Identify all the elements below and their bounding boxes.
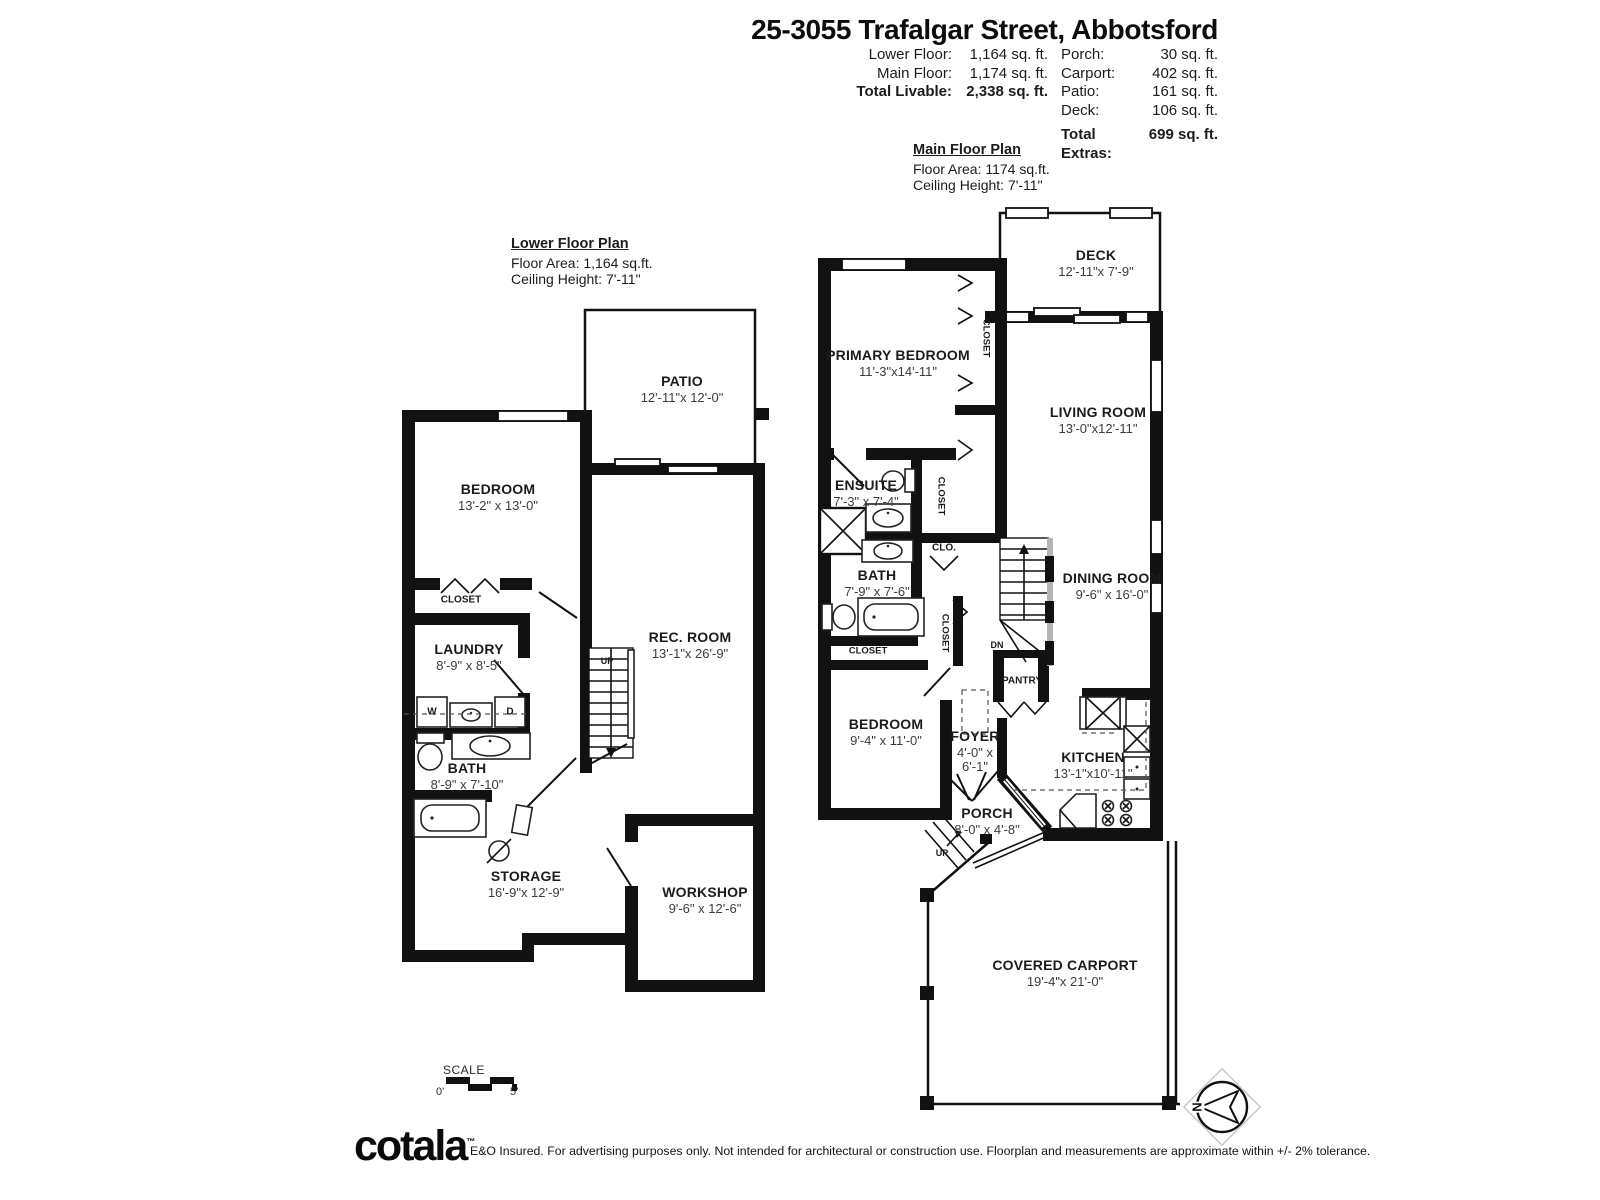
stat-row: Patio:161 sq. ft.: [1061, 83, 1218, 102]
window: [1126, 312, 1148, 322]
label-dryer: D: [506, 707, 513, 718]
lower-floor-fixtures: [404, 648, 634, 863]
room-label-rec-room: REC. ROOM13'-1"x 26'-9": [649, 629, 732, 661]
room-label-bedroom-main: BEDROOM9'-4" x 11'-0": [849, 716, 924, 748]
toilet-icon: [822, 604, 855, 630]
carport-post: [920, 1096, 934, 1110]
lower-plan-header: Lower Floor Plan Floor Area: 1,164 sq.ft…: [511, 236, 653, 288]
patio-slider-panel: [615, 459, 660, 466]
kitchen-sink-icon: [1060, 794, 1096, 828]
stat-row: Deck:106 sq. ft.: [1061, 102, 1218, 121]
door-leaf: [607, 848, 631, 886]
door-leaf: [924, 668, 950, 696]
bifold-door: [958, 275, 972, 291]
carport-post: [920, 986, 934, 1000]
stat-row-total: Total Livable:2,338 sq. ft.: [806, 83, 1048, 102]
livable-stats: Lower Floor:1,164 sq. ft. Main Floor:1,1…: [806, 46, 1048, 102]
room-label-bedroom-lower: BEDROOM13'-2" x 13'-0": [458, 481, 538, 513]
sink-icon: [452, 733, 530, 759]
room-label-storage: STORAGE16'-9"x 12'-9": [488, 868, 564, 900]
floorplan-page: .w{fill:#111;} .tl{stroke:#111;stroke-wi…: [0, 0, 1600, 1200]
stat-row: Porch:30 sq. ft.: [1061, 46, 1218, 65]
scale-bar: [446, 1077, 517, 1091]
stat-row: Carport:402 sq. ft.: [1061, 65, 1218, 84]
room-label-kitchen: KITCHEN13'-1"x10'-11": [1054, 749, 1133, 781]
sink-icon: [862, 540, 913, 562]
cotala-logo: cotala™: [354, 1122, 475, 1171]
pantry-door: [998, 702, 1024, 717]
main-plan-header: Main Floor Plan Floor Area: 1174 sq.ft. …: [913, 142, 1050, 194]
window: [498, 411, 568, 421]
room-label-living-room: LIVING ROOM13'-0"x12'-11": [1050, 404, 1146, 436]
label-washer: W: [427, 707, 436, 718]
room-label-carport: COVERED CARPORT19'-4"x 21'-0": [992, 957, 1137, 989]
bifold-door: [471, 579, 499, 593]
room-label-laundry: LAUNDRY8'-9" x 8'-5": [434, 641, 503, 673]
shower-icon: [820, 508, 866, 554]
laundry-sink-icon: [462, 709, 480, 721]
stat-row-total: Total Extras:699 sq. ft.: [1061, 126, 1218, 145]
label-dn: DN: [991, 640, 1004, 650]
double-door: [945, 771, 998, 801]
bifold-door: [958, 440, 972, 460]
room-label-foyer: FOYER4'-0" x6'-1": [950, 728, 999, 774]
scale-end: 5': [510, 1086, 518, 1098]
floorplan-drawing: .w{fill:#111;} .tl{stroke:#111;stroke-wi…: [0, 0, 1600, 1200]
label-closet-vertical-1: CLOSET: [981, 319, 992, 358]
label-clo: CLO.: [932, 543, 956, 554]
scale-start: 0': [436, 1086, 444, 1098]
window: [1151, 360, 1162, 412]
pantry-door: [1024, 702, 1046, 714]
label-closet-vertical-2: CLOSET: [936, 477, 947, 516]
room-label-dining-room: DINING ROOM9'-6" x 16'-0": [1063, 570, 1162, 602]
stairs-main: [1000, 538, 1054, 666]
bathtub-icon: [414, 799, 486, 837]
room-label-patio: PATIO12'-11"x 12'-0": [641, 373, 724, 405]
disclaimer-text: E&O Insured. For advertising purposes on…: [470, 1144, 1370, 1158]
label-closet-strip: CLOSET: [849, 646, 888, 657]
patio-slider-panel: [668, 466, 718, 473]
room-label-bath-main: BATH7'-9" x 7'-6": [844, 567, 910, 599]
room-label-porch: PORCH8'-0" x 4'-8": [954, 805, 1020, 837]
room-label-ensuite: ENSUITE7'-3" x 7'-4": [833, 477, 899, 509]
extras-stats: Porch:30 sq. ft. Carport:402 sq. ft. Pat…: [1061, 46, 1218, 145]
room-label-bath-lower: BATH8'-9" x 7'-10": [431, 760, 504, 792]
party-wall-stub: [755, 408, 769, 420]
carport-post: [920, 888, 934, 902]
north-label: N: [1190, 1101, 1205, 1112]
stove-icon: [1103, 801, 1132, 826]
water-heater-icon: [487, 839, 511, 863]
window: [842, 259, 906, 270]
kitchen-cabinet-icon: [1080, 697, 1126, 729]
label-up-lower: UP: [601, 656, 614, 666]
page-title: 25-3055 Trafalgar Street, Abbotsford: [751, 14, 1218, 46]
carport-post: [1162, 1096, 1176, 1110]
door-leaf: [539, 592, 577, 618]
bifold-door: [958, 308, 972, 324]
label-up-main: UP: [936, 848, 949, 858]
electrical-panel-icon: [512, 805, 533, 835]
closet-door: [930, 556, 958, 570]
bifold-door: [441, 579, 469, 593]
label-closet-vertical-3: CLOSET: [940, 614, 951, 653]
scale-label: SCALE: [443, 1063, 485, 1077]
stat-row: Lower Floor:1,164 sq. ft.: [806, 46, 1048, 65]
deck-rail: [1006, 208, 1048, 218]
room-label-workshop: WORKSHOP9'-6" x 12'-6": [662, 884, 748, 916]
main-floor-fixtures: [820, 469, 1180, 1110]
label-pantry: PANTRY: [1002, 676, 1042, 687]
room-label-deck: DECK12'-11"x 7'-9": [1058, 247, 1133, 279]
room-label-primary-bedroom: PRIMARY BEDROOM11'-3"x14'-11": [826, 347, 970, 379]
bathtub-icon: [858, 598, 924, 636]
deck-rail: [1110, 208, 1152, 218]
slider-panel: [1074, 315, 1120, 323]
stat-row: Main Floor:1,174 sq. ft.: [806, 65, 1048, 84]
slider-panel: [1034, 308, 1080, 316]
window: [1151, 520, 1162, 554]
label-closet-lower: CLOSET: [441, 595, 482, 606]
